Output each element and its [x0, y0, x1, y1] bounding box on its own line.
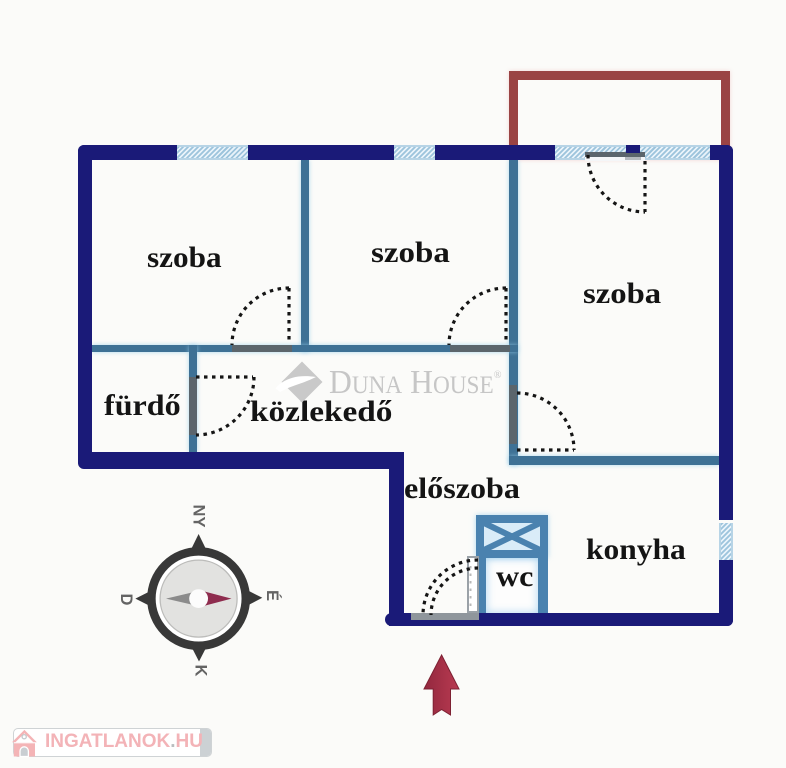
svg-text:NY: NY: [190, 505, 208, 528]
svg-text:K: K: [192, 665, 210, 677]
svg-text:D: D: [117, 594, 135, 606]
svg-text:É: É: [263, 590, 282, 601]
